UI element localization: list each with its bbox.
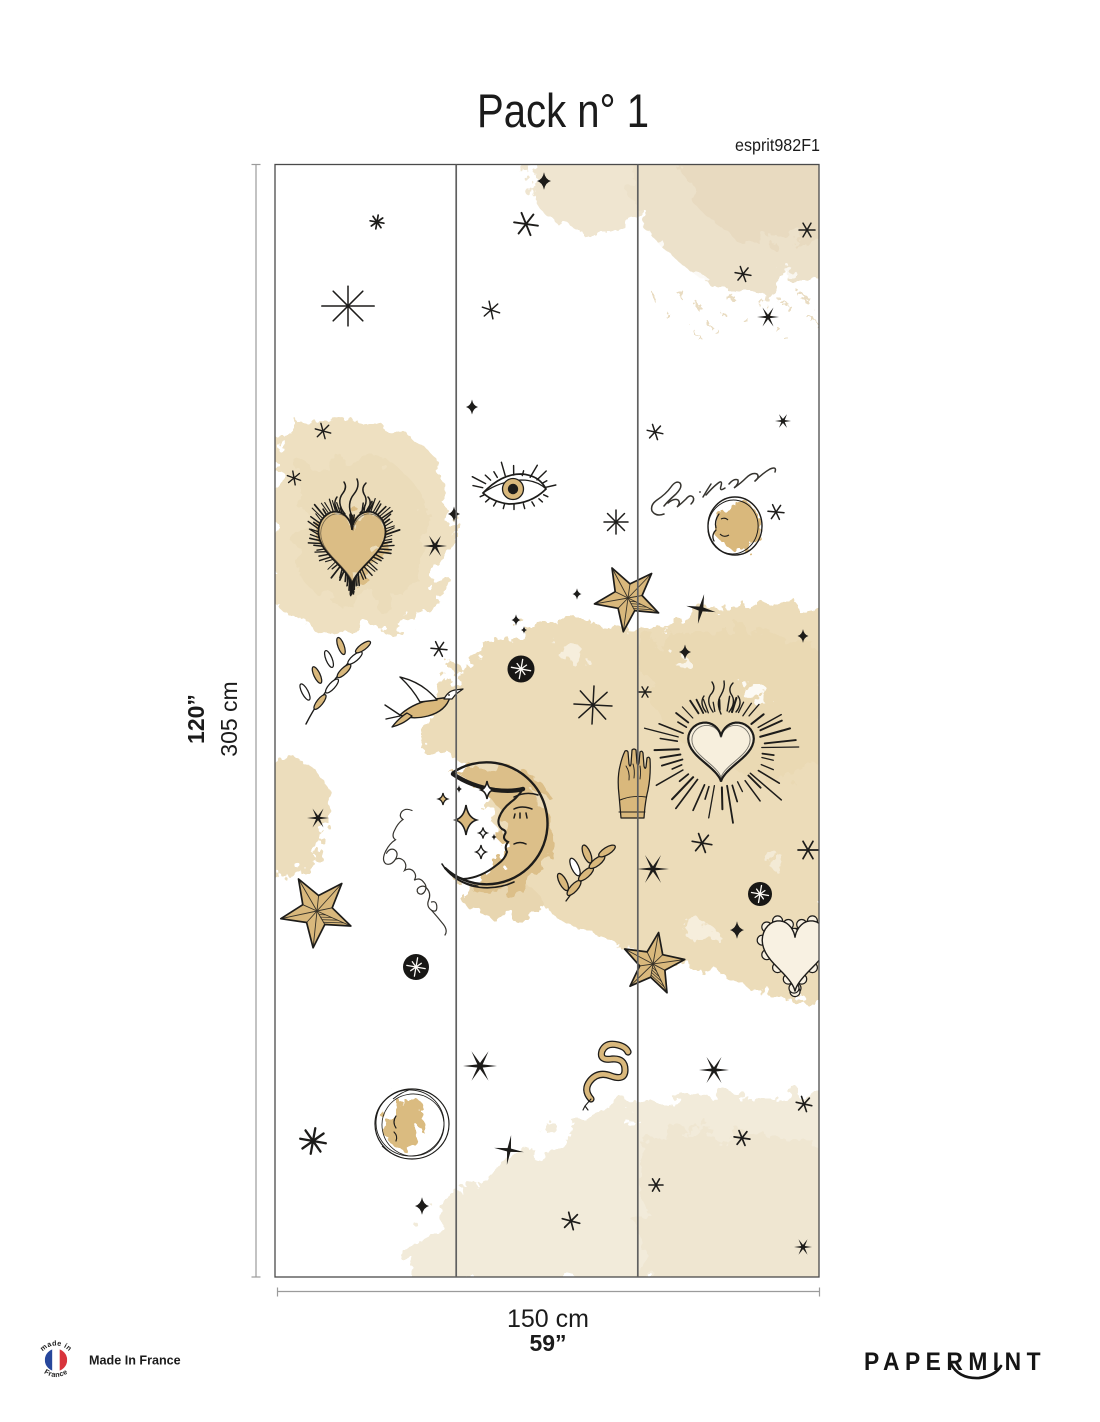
svg-text:150 cm: 150 cm — [507, 1305, 589, 1333]
svg-text:esprit982F1: esprit982F1 — [735, 135, 820, 155]
svg-text:305 cm: 305 cm — [216, 681, 242, 756]
svg-text:120”: 120” — [183, 694, 209, 744]
svg-text:Made In France: Made In France — [89, 1354, 181, 1368]
svg-text:PAPERMINT: PAPERMINT — [864, 1348, 1046, 1376]
svg-text:Pack n° 1: Pack n° 1 — [477, 84, 649, 137]
svg-text:59”: 59” — [529, 1330, 566, 1356]
